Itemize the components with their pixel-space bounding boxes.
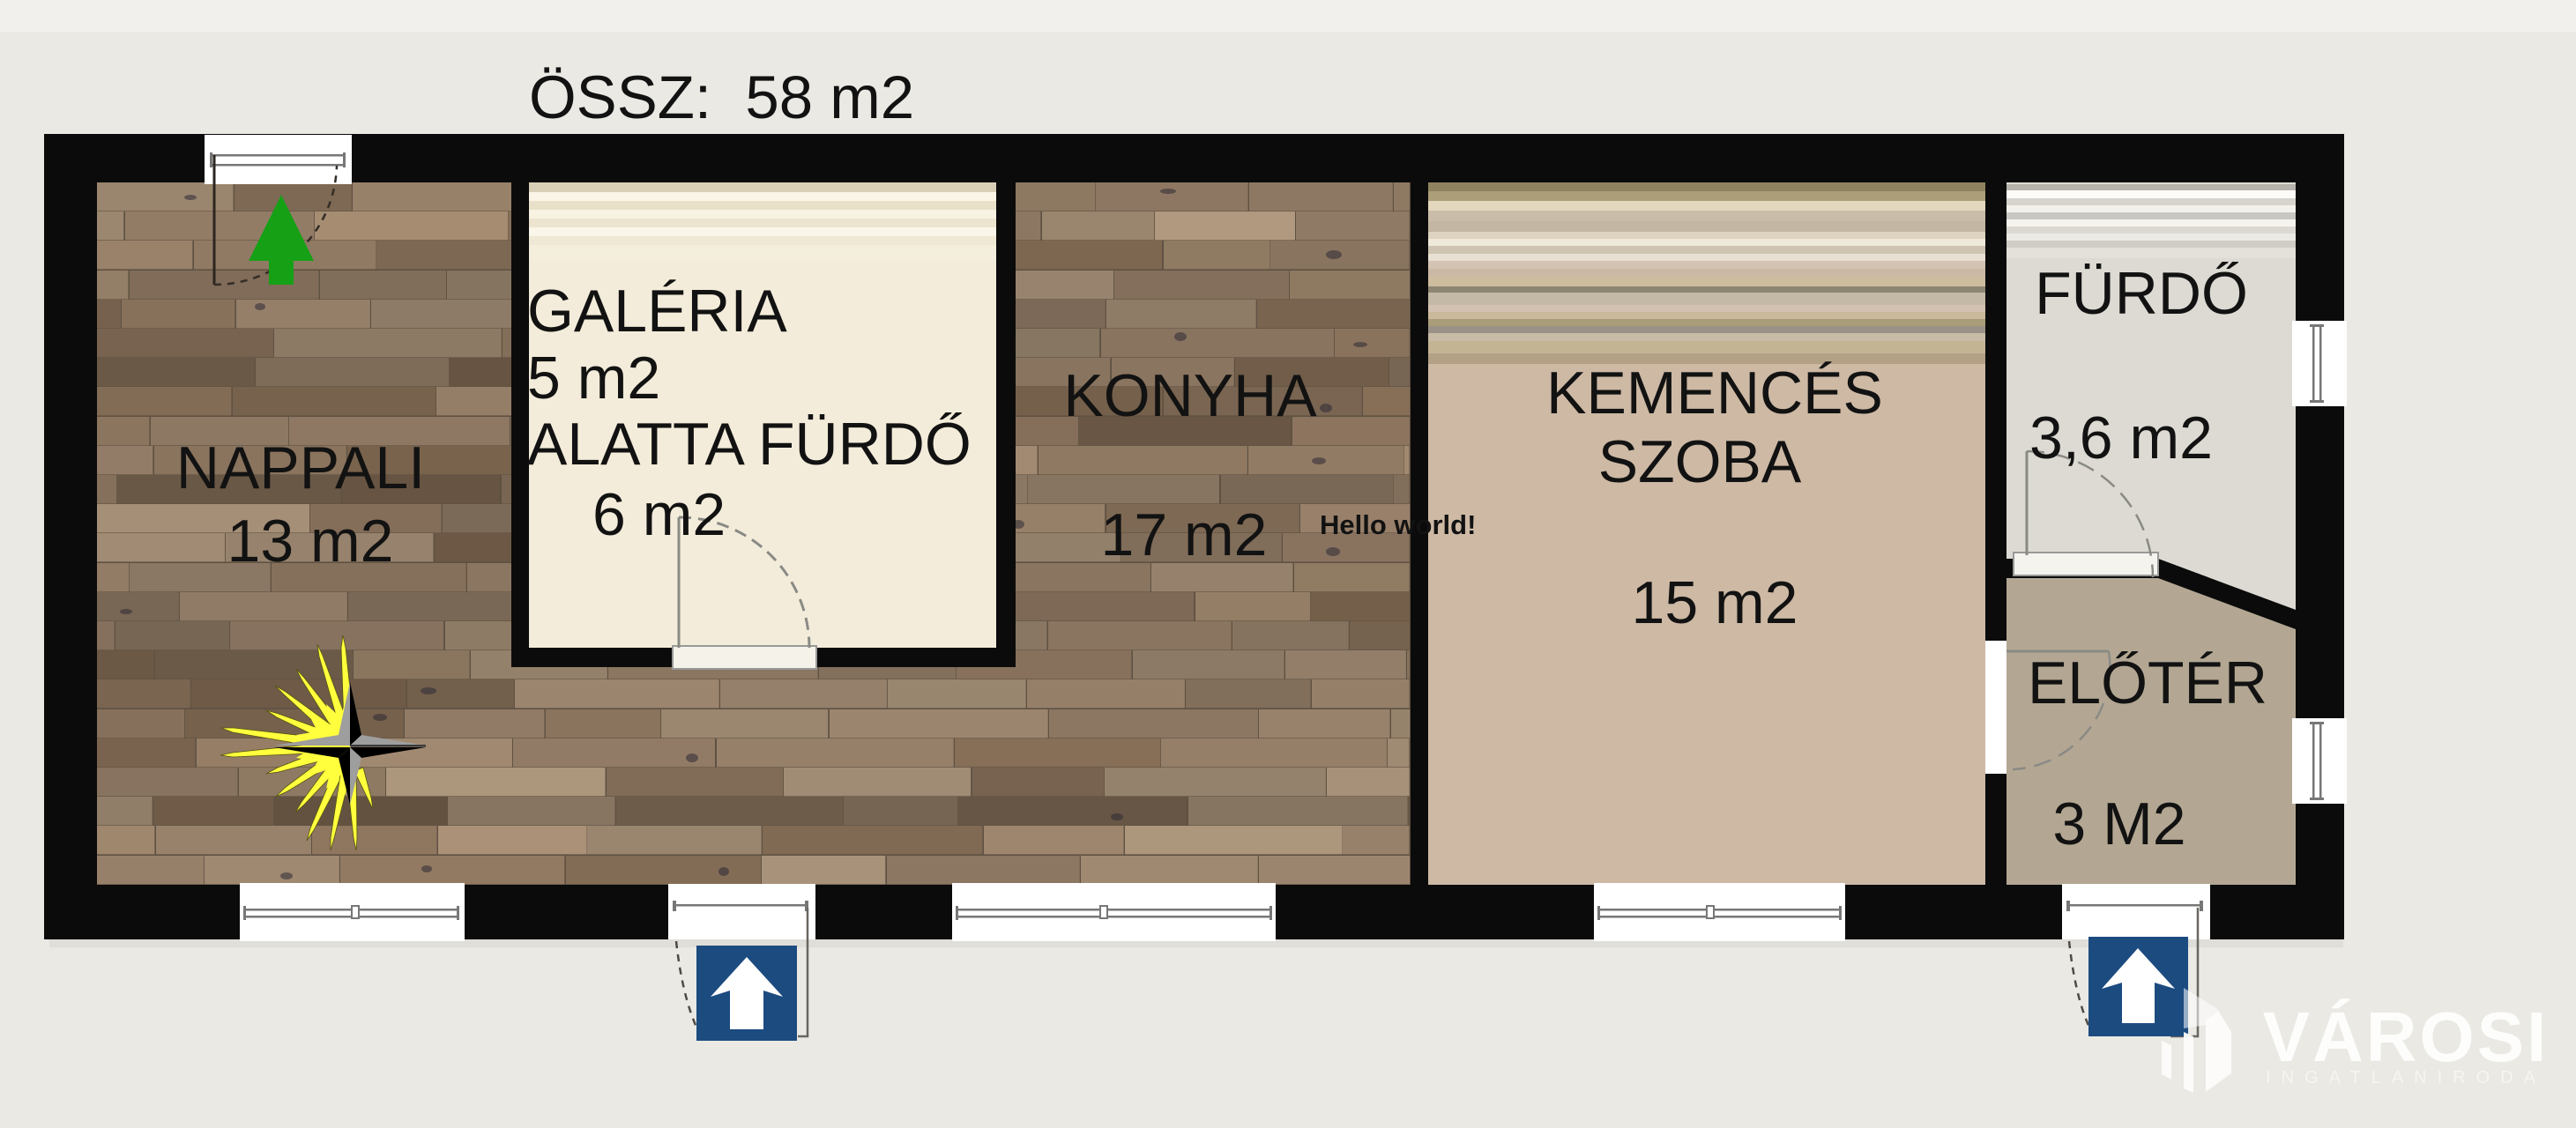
svg-text:Hello world!: Hello world! [1320,509,1476,540]
svg-text:SZOBA: SZOBA [1598,428,1802,495]
svg-text:6 m2: 6 m2 [592,481,726,548]
svg-text:ELŐTÉR: ELŐTÉR [2028,649,2267,716]
svg-text:NAPPALI: NAPPALI [176,434,425,501]
svg-text:5 m2: 5 m2 [527,345,660,412]
svg-text:VÁROSI: VÁROSI [2263,998,2550,1076]
svg-text:KEMENCÉS: KEMENCÉS [1546,360,1883,427]
svg-text:INGATLANIRODA: INGATLANIRODA [2266,1068,2546,1087]
svg-text:ÖSSZ: 58 m2: ÖSSZ: 58 m2 [529,63,914,131]
svg-text:15 m2: 15 m2 [1632,569,1798,636]
svg-text:17 m2: 17 m2 [1101,501,1268,568]
svg-text:3 M2: 3 M2 [2052,790,2185,857]
svg-text:FÜRDŐ: FÜRDŐ [2035,260,2248,327]
svg-text:ALATTA FÜRDŐ: ALATTA FÜRDŐ [527,411,972,478]
svg-text:3,6 m2: 3,6 m2 [2029,404,2213,471]
svg-text:KONYHA: KONYHA [1063,362,1317,429]
svg-text:GALÉRIA: GALÉRIA [527,278,787,345]
svg-text:13 m2: 13 m2 [227,508,394,575]
